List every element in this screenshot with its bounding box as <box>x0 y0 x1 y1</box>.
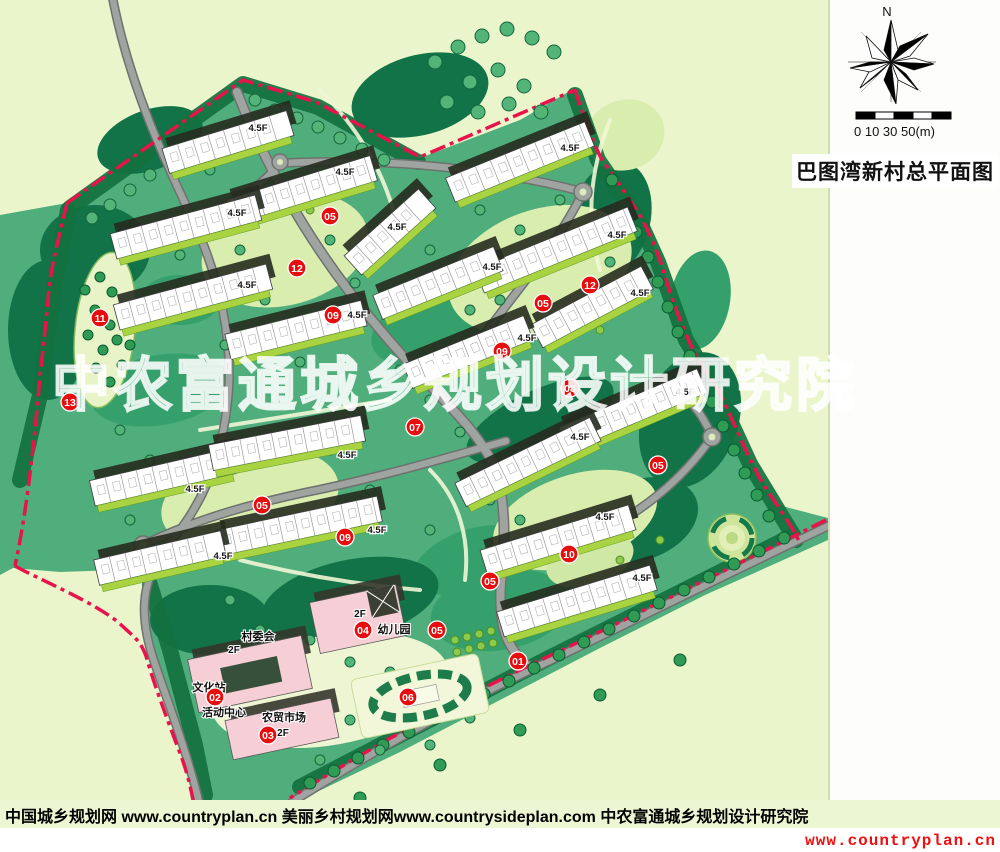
badge-09: 09 <box>336 528 354 546</box>
floor-label: 4.5F <box>248 123 267 134</box>
svg-text:01: 01 <box>512 656 524 668</box>
footer-white-strip: www.countryplan.cn <box>0 828 1000 852</box>
floor-label: 4.5F <box>570 432 589 443</box>
svg-text:05: 05 <box>484 576 496 588</box>
place-label: 活动中心 <box>202 705 246 719</box>
svg-text:07: 07 <box>409 422 421 434</box>
floor-label: 4.5F <box>482 262 501 273</box>
floor-label: 4.5F <box>237 280 256 291</box>
place-label: 2F <box>354 609 366 620</box>
place-label: 2F <box>277 728 289 739</box>
floor-label: 4.5F <box>347 310 366 321</box>
floor-label: 4.5F <box>632 573 651 584</box>
svg-text:11: 11 <box>94 313 105 325</box>
floor-label: 4.5F <box>367 525 386 536</box>
badge-01: 01 <box>509 652 527 670</box>
badge-04: 04 <box>354 621 372 639</box>
site-plan-map: 4.5F4.5F4.5F4.5F4.5F4.5F4.5F4.5F4.5F4.5F… <box>0 0 828 800</box>
floor-label: 4.5F <box>517 333 536 344</box>
floor-label: 4.5F <box>607 230 626 241</box>
north-label: N <box>882 4 891 19</box>
scale-bar: 0 10 30 50(m) <box>836 104 996 146</box>
badge-02: 02 <box>206 688 224 706</box>
floor-label: 4.5F <box>335 167 354 178</box>
floor-label: 4.5F <box>185 484 204 495</box>
svg-text:05: 05 <box>324 211 336 223</box>
floor-label: 4.5F <box>213 551 232 562</box>
site-plan-page: 4.5F4.5F4.5F4.5F4.5F4.5F4.5F4.5F4.5F4.5F… <box>0 0 1000 852</box>
svg-text:13: 13 <box>64 397 76 409</box>
floor-label: 4.5F <box>675 387 694 398</box>
floor-label: 4.5F <box>560 143 579 154</box>
scale-label: 0 10 30 50(m) <box>854 124 935 139</box>
badge-05: 05 <box>481 572 499 590</box>
floor-label: 4.5F <box>387 222 406 233</box>
badge-09: 09 <box>493 342 511 360</box>
badge-05: 05 <box>253 496 271 514</box>
badge-07: 07 <box>406 418 424 436</box>
place-label: 农贸市场 <box>261 710 306 724</box>
badge-11: 11 <box>91 309 109 327</box>
place-label: 2F <box>228 645 240 656</box>
badge-05: 05 <box>534 294 552 312</box>
svg-text:09: 09 <box>339 532 351 544</box>
svg-text:09: 09 <box>327 310 339 322</box>
svg-text:05: 05 <box>652 460 664 472</box>
place-label: 幼儿园 <box>378 622 411 636</box>
badge-12: 12 <box>581 276 599 294</box>
badge-06: 06 <box>399 688 417 706</box>
svg-text:05: 05 <box>431 625 443 637</box>
svg-text:12: 12 <box>584 280 596 292</box>
badge-09: 09 <box>324 306 342 324</box>
circular-lawn <box>708 514 756 562</box>
floor-label: 4.5F <box>337 450 356 461</box>
svg-text:03: 03 <box>262 730 274 742</box>
footer-url-watermark: www.countryplan.cn <box>805 832 996 850</box>
svg-text:09: 09 <box>496 346 508 358</box>
badge-13: 13 <box>61 393 79 411</box>
svg-text:10: 10 <box>563 549 575 561</box>
info-panel: N 0 10 30 50(m) 0 <box>828 0 1000 800</box>
svg-text:08: 08 <box>564 383 576 395</box>
footer-bar: 中国城乡规划网 www.countryplan.cn 美丽乡村规划网www.co… <box>0 800 1000 852</box>
svg-text:02: 02 <box>209 692 221 704</box>
map-canvas: 4.5F4.5F4.5F4.5F4.5F4.5F4.5F4.5F4.5F4.5F… <box>0 0 828 800</box>
floor-label: 4.5F <box>227 208 246 219</box>
footer-credits: 中国城乡规划网 www.countryplan.cn 美丽乡村规划网www.co… <box>5 803 808 827</box>
compass-rose: N <box>836 2 996 106</box>
badge-08: 08 <box>561 379 579 397</box>
floor-label: 4.5F <box>595 512 614 523</box>
badge-10: 10 <box>560 545 578 563</box>
badge-05: 05 <box>428 621 446 639</box>
floor-label: 4.5F <box>630 288 649 299</box>
badge-03: 03 <box>259 726 277 744</box>
plan-title: 巴图湾新村总平面图 <box>792 154 998 188</box>
svg-text:06: 06 <box>402 692 414 704</box>
badge-12: 12 <box>288 259 306 277</box>
badge-05: 05 <box>321 207 339 225</box>
badge-05: 05 <box>649 456 667 474</box>
svg-text:12: 12 <box>291 263 303 275</box>
svg-text:05: 05 <box>256 500 268 512</box>
svg-text:05: 05 <box>537 298 549 310</box>
place-label: 村委会 <box>242 629 276 643</box>
svg-text:04: 04 <box>357 625 369 637</box>
